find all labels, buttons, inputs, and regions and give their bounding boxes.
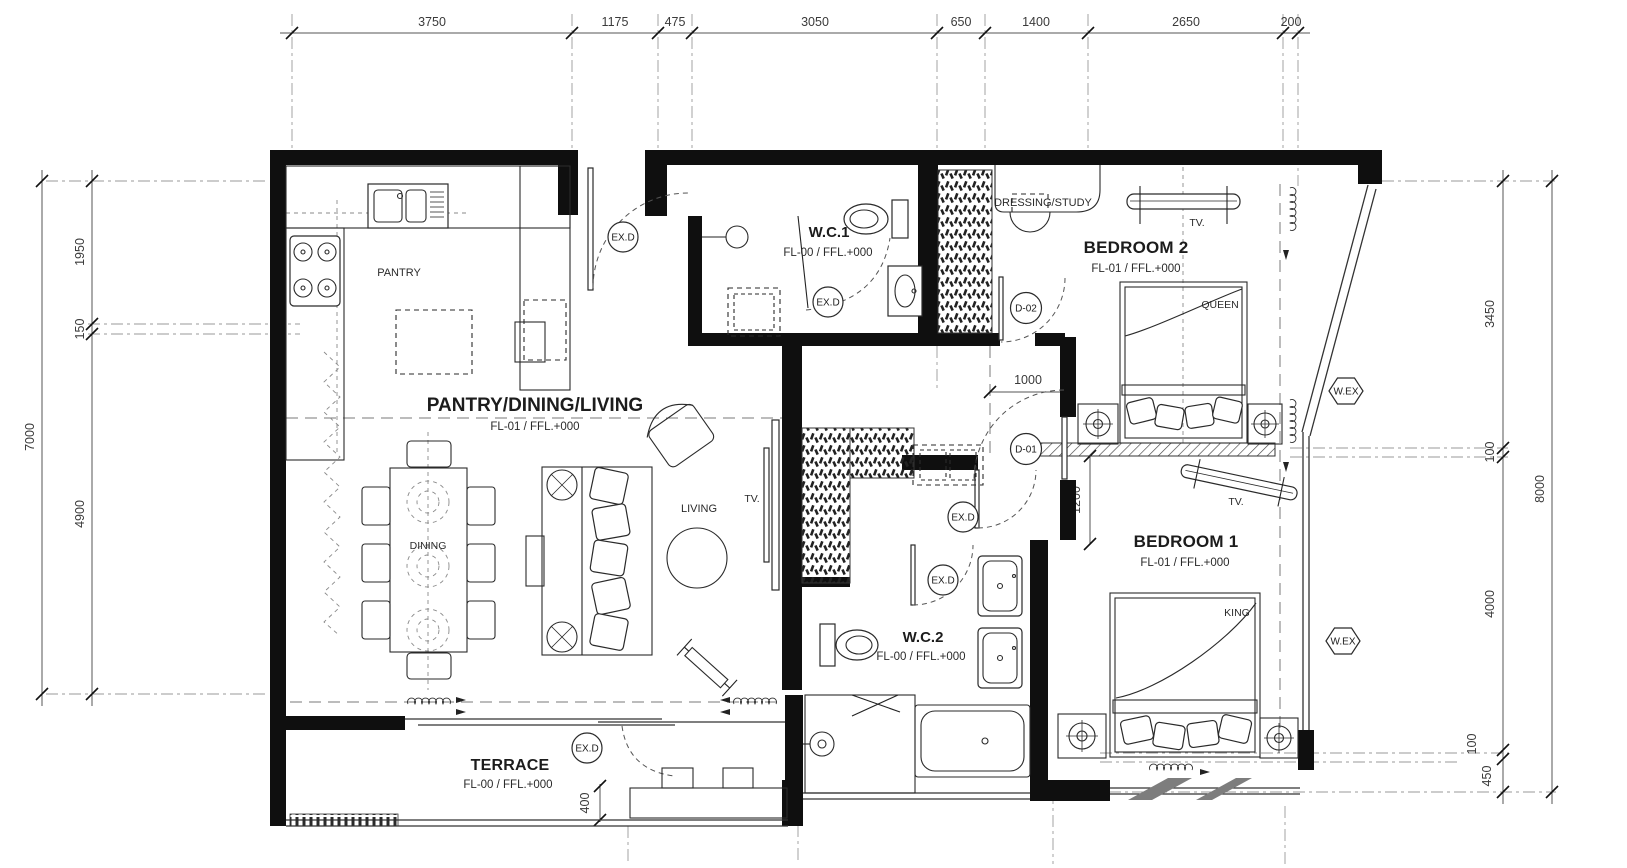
bed-label-queen: QUEEN xyxy=(1201,299,1238,311)
floor-lamp xyxy=(677,639,737,696)
exit-door-tag: EX.D xyxy=(575,744,598,755)
room-label-bedroom1: BEDROOM 1 xyxy=(1134,532,1239,551)
level-label-living: FL-01 / FFL.+000 xyxy=(490,421,579,433)
dining-table xyxy=(362,441,495,679)
dimension-chain-left: 1950 150 4900 7000 xyxy=(23,170,98,706)
dining-label: DINING xyxy=(410,540,447,552)
living-label: LIVING xyxy=(681,503,717,515)
exit-door-tag: EX.D xyxy=(951,513,974,524)
floor-plan-canvas: 3750 1175 475 3050 650 1400 2650 200 195… xyxy=(0,0,1627,868)
room-label-bedroom2: BEDROOM 2 xyxy=(1084,238,1189,257)
dim-label-right-4: 100 xyxy=(1465,734,1479,755)
dim-label-top-2: 1175 xyxy=(602,15,629,29)
dimension-chain-top: 3750 1175 475 3050 650 1400 2650 200 xyxy=(280,15,1310,39)
level-label-terrace: FL-00 / FFL.+000 xyxy=(463,779,552,791)
terrace-bench xyxy=(630,768,787,818)
room-label-pantry: PANTRY xyxy=(377,267,421,279)
service-shaft xyxy=(702,226,780,336)
watermark xyxy=(1128,778,1252,800)
dim-label-top-4: 3050 xyxy=(801,15,829,29)
room-label-dressing: DRESSING/STUDY xyxy=(994,197,1092,209)
dim-label-right-1: 3450 xyxy=(1483,300,1497,328)
dim-label-top-8: 200 xyxy=(1281,15,1302,29)
sofa xyxy=(526,467,652,655)
floor-plan: 3750 1175 475 3050 650 1400 2650 200 195… xyxy=(0,0,1627,868)
hatched-wall xyxy=(1035,443,1275,456)
level-label-wc2: FL-00 / FFL.+000 xyxy=(876,651,965,663)
dim-label-left-3: 4900 xyxy=(73,500,87,528)
room-label-wc1: W.C.1 xyxy=(809,224,850,241)
wc2-toilet xyxy=(820,624,878,666)
dim-label-terrace: 400 xyxy=(578,793,592,814)
door-tag-d02: D-02 xyxy=(1015,304,1037,315)
bed-label-king: KING xyxy=(1224,607,1250,619)
nightstand xyxy=(1078,404,1118,444)
nightstand xyxy=(1058,714,1106,758)
curtain-zigzag xyxy=(324,352,340,636)
bathtub xyxy=(915,705,1030,777)
room-label-living: PANTRY/DINING/LIVING xyxy=(427,395,643,416)
wc1-sink xyxy=(888,266,922,316)
armchair xyxy=(639,394,716,470)
nightstand xyxy=(1248,404,1282,444)
stove xyxy=(290,236,340,306)
dim-label-left-2: 150 xyxy=(73,319,87,340)
dim-label-right-3: 4000 xyxy=(1483,590,1497,618)
curtain-coils xyxy=(408,188,1296,776)
dim-label-left-1: 1950 xyxy=(73,238,87,266)
tv-label-living: TV. xyxy=(744,493,759,505)
room-label-terrace: TERRACE xyxy=(471,757,550,774)
window-tag-wex: W.EX xyxy=(1330,637,1355,648)
dim-label-right-2: 100 xyxy=(1483,442,1497,463)
nightstand xyxy=(1260,718,1298,758)
exit-door-tag: EX.D xyxy=(816,298,839,309)
coffee-table xyxy=(667,528,727,588)
kitchen-sink xyxy=(368,184,448,228)
room-label-wc2: W.C.2 xyxy=(903,629,944,646)
exit-door-tag: EX.D xyxy=(931,576,954,587)
bedroom2-tv-unit xyxy=(1127,186,1240,224)
window-tag-wex: W.EX xyxy=(1333,387,1358,398)
living-tv-unit xyxy=(764,420,779,590)
dim-label-top-7: 2650 xyxy=(1172,15,1200,29)
dim-label-top-6: 1400 xyxy=(1022,15,1050,29)
tv-label-bedroom1: TV. xyxy=(1228,496,1243,508)
dim-label-right-5: 450 xyxy=(1480,766,1494,787)
dim-label-corridor: 1000 xyxy=(1014,373,1042,387)
level-label-wc1: FL-00 / FFL.+000 xyxy=(783,247,872,259)
shower xyxy=(803,695,915,793)
dim-label-left-total: 7000 xyxy=(23,423,37,451)
dim-label-top-5: 650 xyxy=(951,15,972,29)
dimension-chain-right: 3450 100 4000 100 450 8000 xyxy=(1465,170,1558,804)
entry-door-leaf xyxy=(588,168,593,290)
wc1-toilet xyxy=(844,200,908,238)
tv-label-bedroom2: TV. xyxy=(1189,217,1204,229)
dim-label-top-1: 3750 xyxy=(418,15,446,29)
exit-door-tag: EX.D xyxy=(611,233,634,244)
twin-sinks xyxy=(978,556,1022,688)
door-tag-d01: D-01 xyxy=(1015,445,1037,456)
dim-label-top-3: 475 xyxy=(665,15,686,29)
level-label-bedroom1: FL-01 / FFL.+000 xyxy=(1140,557,1229,569)
level-label-bedroom2: FL-01 / FFL.+000 xyxy=(1091,263,1180,275)
dim-label-right-total: 8000 xyxy=(1533,475,1547,503)
